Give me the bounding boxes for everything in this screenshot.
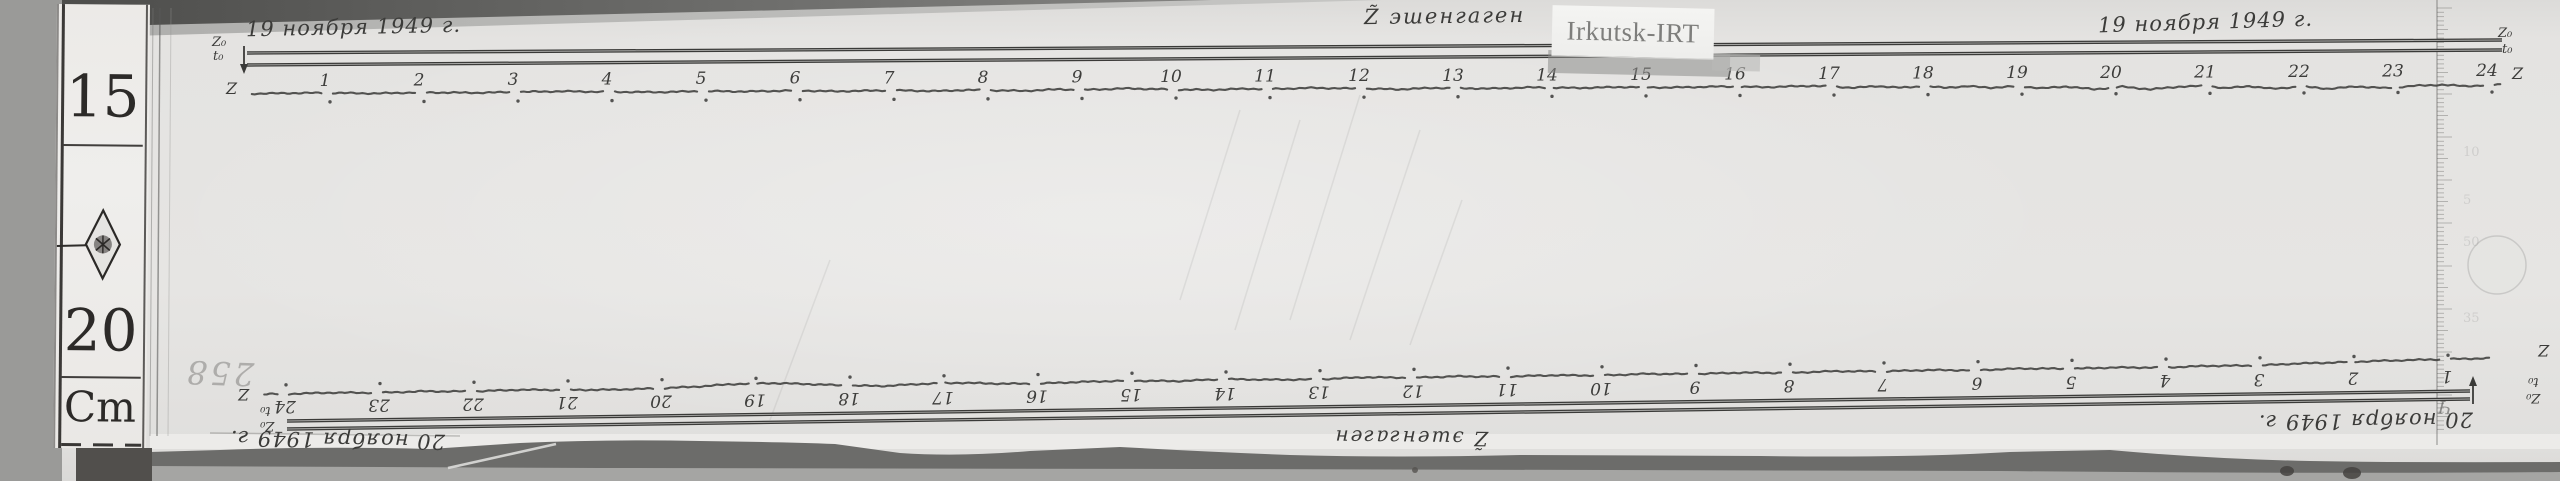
hour-dot bbox=[942, 374, 945, 377]
hour-label: 2 bbox=[413, 70, 425, 90]
hour-label: 5 bbox=[696, 69, 707, 89]
hour-label: 17 bbox=[932, 387, 954, 407]
bottom-trace-label-right: Z bbox=[2538, 341, 2549, 360]
hour-dot bbox=[284, 383, 287, 386]
hour-label: 19 bbox=[2006, 63, 2028, 83]
debris-blob bbox=[2280, 466, 2294, 476]
top-trace-label-left: Z bbox=[226, 79, 237, 98]
hour-dot bbox=[1080, 97, 1083, 100]
top-trace-label-right: Z bbox=[2512, 64, 2523, 83]
hour-dot bbox=[2114, 92, 2117, 95]
bottom-t0-label-right: t₀ bbox=[2528, 374, 2538, 389]
hour-label: 11 bbox=[1496, 379, 1518, 399]
baseline-line-sheen bbox=[287, 391, 2470, 421]
hour-dot bbox=[1362, 95, 1365, 98]
film-streak bbox=[1350, 130, 1420, 340]
bottom-date-left: 20 ноября 1949 г. bbox=[250, 426, 445, 453]
hour-label: 12 bbox=[1402, 380, 1424, 400]
hour-dot bbox=[2396, 91, 2399, 94]
hour-dot bbox=[2490, 90, 2493, 93]
hour-dot bbox=[1036, 373, 1039, 376]
hour-dot bbox=[1832, 93, 1835, 96]
hour-label: 8 bbox=[978, 68, 989, 88]
hour-label: 10 bbox=[1160, 67, 1182, 87]
hour-dot bbox=[848, 375, 851, 378]
hour-label: 13 bbox=[1308, 382, 1330, 402]
hour-label: 24 bbox=[2475, 61, 2498, 81]
ruler-faint-number: 5 bbox=[2463, 193, 2471, 208]
hour-dot bbox=[378, 382, 381, 385]
hour-dot bbox=[2020, 92, 2023, 95]
film-streak bbox=[1290, 95, 1360, 320]
bottom-z0-label-right: Z₀ bbox=[2526, 390, 2540, 405]
hour-label: 23 bbox=[2381, 61, 2404, 81]
hour-dot bbox=[1600, 365, 1603, 368]
hour-dot bbox=[610, 99, 613, 102]
hour-label: 7 bbox=[884, 68, 895, 88]
top-z0-label-left: Z₀ bbox=[212, 35, 226, 50]
bottom-trace bbox=[264, 358, 2489, 395]
pencil-archive-number: 258 bbox=[183, 353, 254, 393]
hour-label: 22 bbox=[462, 393, 485, 413]
hour-dot bbox=[1738, 94, 1741, 97]
hour-label: 5 bbox=[2066, 371, 2077, 391]
t0-arrow-head-bottom bbox=[2469, 376, 2477, 386]
table-corner-shadow bbox=[76, 448, 152, 481]
hour-dot bbox=[2070, 359, 2073, 362]
hour-label: 23 bbox=[368, 395, 391, 415]
top-trace bbox=[252, 84, 2501, 94]
hour-dot bbox=[1882, 361, 1885, 364]
film-streak bbox=[1235, 120, 1300, 330]
hour-label: 6 bbox=[1971, 373, 1982, 393]
hour-dot bbox=[1130, 372, 1133, 375]
round-stain bbox=[2468, 236, 2526, 294]
hour-dot bbox=[2302, 91, 2305, 94]
station-label: Irkutsk-IRT bbox=[1551, 5, 1714, 60]
baseline-line-sheen bbox=[287, 399, 2470, 429]
hour-label: 4 bbox=[2160, 370, 2172, 390]
top-t0-label-right: t₀ bbox=[2502, 42, 2512, 57]
ruler-faint-number: 10 bbox=[2463, 145, 2480, 160]
hour-dot bbox=[704, 98, 707, 101]
hour-label: 3 bbox=[508, 70, 519, 90]
hour-dot bbox=[892, 98, 895, 101]
hour-dot bbox=[798, 98, 801, 101]
hour-dot bbox=[2208, 92, 2211, 95]
top-date-left: 19 ноября 1949 г. bbox=[246, 13, 461, 41]
hour-dot bbox=[2164, 357, 2167, 360]
hour-label: 1 bbox=[2442, 366, 2453, 386]
hour-dot bbox=[1926, 93, 1929, 96]
t0-arrow-head bbox=[240, 64, 248, 74]
hour-label: 20 bbox=[650, 391, 673, 411]
hour-dot bbox=[1694, 364, 1697, 367]
hour-dot bbox=[1456, 95, 1459, 98]
hour-label: 21 bbox=[556, 392, 579, 412]
film-streak bbox=[1410, 200, 1462, 345]
hour-label: 12 bbox=[1348, 66, 1370, 86]
paper-edge-line bbox=[168, 8, 171, 436]
top-z0-label-right: Z₀ bbox=[2498, 26, 2512, 41]
hour-dot bbox=[1644, 94, 1647, 97]
hour-dot bbox=[660, 378, 663, 381]
hour-dot bbox=[566, 379, 569, 382]
hour-label: 15 bbox=[1120, 384, 1142, 404]
hour-label: 3 bbox=[2254, 369, 2265, 389]
hour-dot bbox=[1412, 368, 1415, 371]
hour-dot bbox=[1506, 366, 1509, 369]
hour-label: 18 bbox=[838, 388, 860, 408]
hour-label: 17 bbox=[1818, 64, 1840, 84]
hour-dot bbox=[472, 381, 475, 384]
hour-dot bbox=[422, 100, 425, 103]
paper-edge-line bbox=[150, 8, 153, 436]
hour-dot bbox=[2446, 354, 2449, 357]
hour-label: 2 bbox=[2348, 367, 2360, 387]
hour-label: 14 bbox=[1214, 383, 1236, 403]
debris-blob bbox=[1412, 467, 1418, 473]
hour-label: 18 bbox=[1912, 64, 1934, 84]
hour-label: 10 bbox=[1590, 378, 1612, 398]
top-t0-label-left: t₀ bbox=[213, 49, 223, 64]
hour-dot bbox=[1174, 96, 1177, 99]
bottom-t0-label-left: t₀ bbox=[260, 403, 270, 418]
hour-dot bbox=[1268, 96, 1271, 99]
hour-dot bbox=[516, 99, 519, 102]
hour-label: 9 bbox=[1072, 67, 1083, 87]
hour-label: 24 bbox=[274, 396, 297, 416]
hour-label: 4 bbox=[601, 70, 613, 90]
record-drawing: 1055035123456789101112131415161718192021… bbox=[0, 0, 2560, 481]
hour-dot bbox=[328, 100, 331, 103]
hour-label: 16 bbox=[1026, 386, 1048, 406]
bottom-instrument-title: Z̃ эшенгаген bbox=[1328, 425, 1488, 451]
hour-label: 19 bbox=[744, 389, 766, 409]
hour-dot bbox=[754, 377, 757, 380]
hour-dot bbox=[1224, 370, 1227, 373]
hour-dot bbox=[2352, 355, 2355, 358]
hour-dot bbox=[986, 97, 989, 100]
ruler-faint-number: 35 bbox=[2463, 311, 2480, 326]
hour-dot bbox=[1550, 95, 1553, 98]
hour-label: 20 bbox=[2099, 63, 2122, 83]
debris-blob bbox=[2343, 467, 2361, 479]
hour-dot bbox=[1976, 360, 1979, 363]
hour-label: 9 bbox=[1689, 377, 1700, 397]
hour-dot bbox=[2258, 356, 2261, 359]
film-streak bbox=[1180, 110, 1240, 300]
hour-label: 8 bbox=[1783, 375, 1794, 395]
hour-label: 1 bbox=[320, 71, 331, 91]
hour-label: 22 bbox=[2287, 62, 2310, 82]
magnetogram-photo: 15 20 Cm 1055035123456789101112131415161… bbox=[0, 0, 2560, 481]
paper-edge-line bbox=[157, 8, 160, 436]
film-streak bbox=[770, 260, 830, 420]
top-instrument-title: Z̃ эшенгаген bbox=[1364, 3, 1526, 29]
hour-label: 7 bbox=[1877, 374, 1888, 394]
hour-label: 13 bbox=[1442, 66, 1464, 86]
hour-label: 11 bbox=[1254, 67, 1276, 87]
stray-pen-mark: Ч bbox=[2437, 396, 2452, 418]
hour-label: 21 bbox=[2193, 62, 2216, 82]
hour-dot bbox=[1788, 363, 1791, 366]
station-label-shadow-edge bbox=[1712, 53, 1760, 71]
hour-dot bbox=[1318, 369, 1321, 372]
hour-label: 6 bbox=[790, 69, 801, 89]
